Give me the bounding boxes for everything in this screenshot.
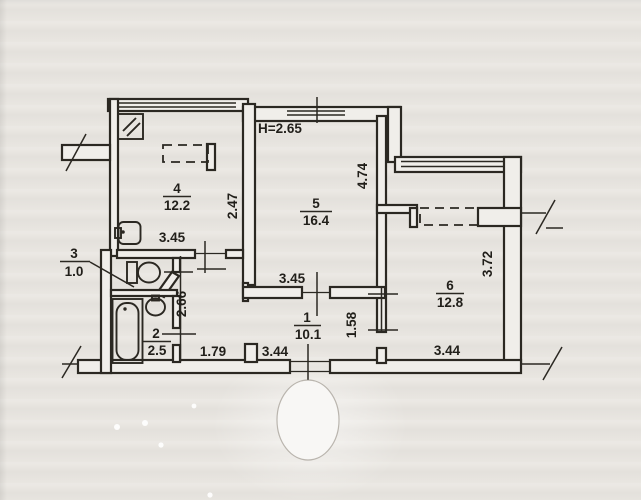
dim-room6-width: 3.44 <box>434 343 461 358</box>
dim-room4-depth: 2.47 <box>225 193 240 219</box>
room-label-6: 6 12.8 <box>436 278 464 310</box>
break-mark-top-right <box>521 200 563 234</box>
room2-number: 2 <box>152 326 160 341</box>
room6-number: 6 <box>446 278 454 293</box>
wall-room6-left-2 <box>377 348 386 363</box>
kitchen-sink-icon <box>115 222 141 244</box>
wall-left-kitchen <box>110 99 118 256</box>
wall-connector-right <box>388 107 401 162</box>
paper-specks <box>114 404 213 498</box>
dim-hall-right-depth: 1.58 <box>344 311 359 338</box>
dim-room6-depth: 3.72 <box>480 251 495 277</box>
wall-entry-pier <box>245 344 257 362</box>
wall-room5-bottom <box>243 287 302 298</box>
stamp-placeholder <box>277 380 339 460</box>
room3-number: 3 <box>70 246 78 261</box>
dim-left-block-depth: 2.66 <box>174 290 189 317</box>
dim-hall-width: 3.44 <box>262 344 289 359</box>
room-label-5: 5 16.4 <box>300 196 332 228</box>
room1-area: 10.1 <box>295 327 322 342</box>
dashed-balcony-opening <box>420 208 478 225</box>
break-mark-bottom-right <box>521 347 562 380</box>
bathtub-icon <box>113 299 143 363</box>
room3-area: 1.0 <box>65 264 84 279</box>
wall-kitchen-bottom <box>117 250 195 258</box>
room6-area: 12.8 <box>437 295 464 310</box>
room5-area: 16.4 <box>303 213 330 228</box>
wall-left-stub <box>62 145 110 160</box>
room5-number: 5 <box>312 196 320 211</box>
electrical-panel-icon <box>118 114 143 139</box>
room4-area: 12.2 <box>164 198 190 213</box>
wall-top-room6 <box>395 157 521 172</box>
room1-number: 1 <box>303 310 311 325</box>
wall-kitchen-room5 <box>243 104 255 285</box>
wall-alcove-stub <box>410 208 417 227</box>
wall-wc-bottom <box>111 290 177 296</box>
walls <box>62 99 521 373</box>
dim-room4-width: 3.45 <box>159 230 186 245</box>
wall-room5-bottom-2 <box>330 287 385 298</box>
wall-right <box>504 157 521 363</box>
wall-bath-right-2 <box>173 345 180 362</box>
dim-hall-left-segment: 1.79 <box>200 344 226 359</box>
room2-area: 2.5 <box>148 343 167 358</box>
wall-wc-right <box>173 258 180 272</box>
dashed-vent-shaft <box>163 145 208 162</box>
toilet-icon <box>127 262 160 283</box>
washbasin-icon <box>146 296 165 316</box>
ceiling-height-label: H=2.65 <box>258 121 302 136</box>
dim-room5-width: 3.45 <box>279 271 306 286</box>
room4-number: 4 <box>173 181 181 196</box>
room-label-2: 2 2.5 <box>143 326 171 358</box>
room-label-4: 4 12.2 <box>163 181 191 213</box>
wall-bottom-right <box>330 360 521 373</box>
wall-balcony-partition <box>478 208 521 226</box>
dim-room5-depth: 4.74 <box>355 162 370 189</box>
wall-top-kitchen <box>108 99 248 111</box>
room-label-3: 3 1.0 <box>60 246 90 279</box>
floor-plan-drawing: 4 12.2 5 16.4 6 12.8 1 10.1 2 2.5 3 1.0 <box>0 0 641 500</box>
scanned-floor-plan-page: 4 12.2 5 16.4 6 12.8 1 10.1 2 2.5 3 1.0 <box>0 0 641 500</box>
wall-kitchen-bottom-2 <box>226 250 243 258</box>
